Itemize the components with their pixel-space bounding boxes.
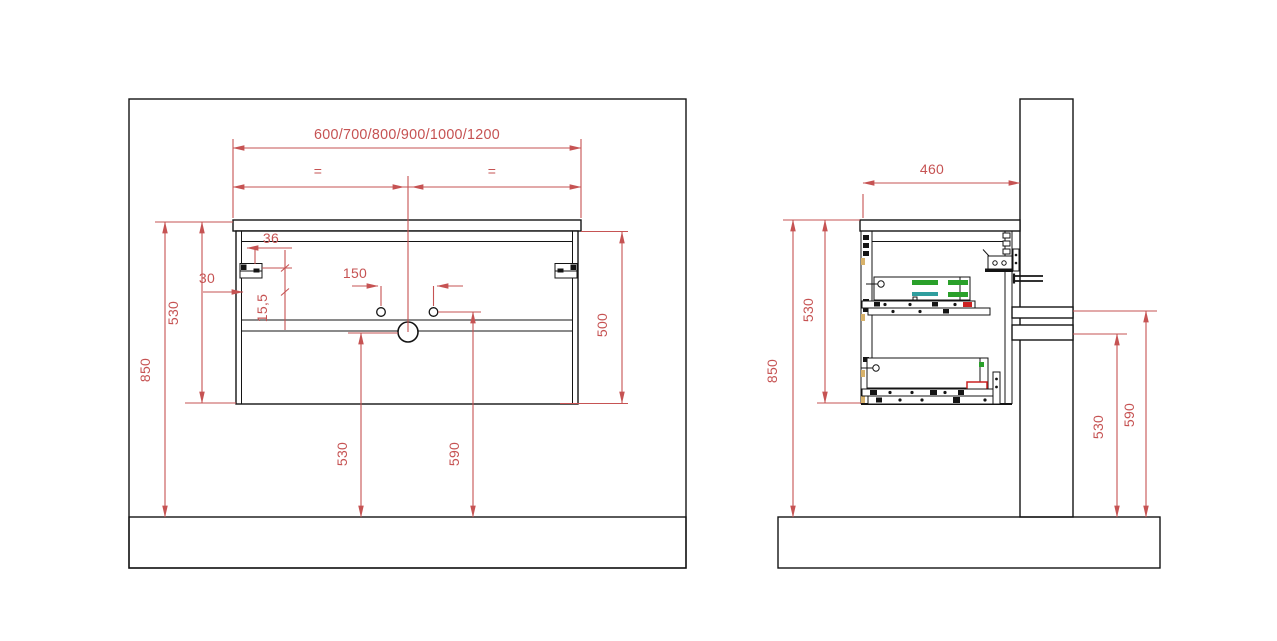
supply-pipe bbox=[1012, 307, 1073, 318]
faucet-hole-right bbox=[429, 308, 438, 317]
dim-label-drain-pipe-height: 530 bbox=[1090, 415, 1106, 439]
dim-label-height-side: 530 bbox=[800, 298, 816, 322]
carcass-front bbox=[236, 231, 578, 404]
drain-pipe bbox=[1012, 325, 1073, 340]
floor-section-side bbox=[778, 517, 1160, 568]
dim-label-height-with-top: 530 bbox=[165, 301, 181, 325]
dim-label-mounting-height: 850 bbox=[137, 358, 153, 382]
slide-lock-upper bbox=[963, 302, 972, 307]
adjustment-screw-upper bbox=[878, 281, 884, 287]
dim-label-bracket-inset: 36 bbox=[263, 230, 279, 246]
side-view: 460 850 530 590 530 bbox=[764, 99, 1160, 568]
lower-drawer bbox=[861, 358, 1000, 404]
dim-label-bracket-drop: 15,5 bbox=[254, 294, 270, 322]
dim-equal-halves: = = bbox=[233, 163, 581, 187]
dim-label-depth: 460 bbox=[920, 161, 944, 177]
technical-drawing-page: 600/700/800/900/1000/1200 = = 36 30 bbox=[0, 0, 1277, 641]
dim-label-supply-pipe-height: 590 bbox=[1121, 403, 1137, 427]
countertop-front bbox=[233, 220, 581, 231]
dim-label-mounting-height-side: 850 bbox=[764, 359, 780, 383]
dim-label-carcass-height: 500 bbox=[594, 313, 610, 337]
hanging-bracket-right bbox=[555, 264, 577, 279]
dim-label-drain-height: 530 bbox=[334, 442, 350, 466]
side-dimensions: 460 850 530 590 530 bbox=[764, 161, 1157, 517]
dim-label-faucet-spacing: 150 bbox=[343, 265, 367, 281]
lag-screw bbox=[1014, 274, 1043, 284]
dim-mounting-height: 850 bbox=[137, 222, 165, 517]
countertop-side bbox=[860, 220, 1020, 231]
dim-supply-pipe-height: 590 bbox=[1073, 311, 1157, 517]
dim-label-faucet-height: 590 bbox=[446, 442, 462, 466]
dim-label-side-clearance: 30 bbox=[199, 270, 215, 286]
upper-drawer bbox=[862, 277, 990, 315]
dim-label-equal-right: = bbox=[488, 163, 496, 179]
dim-height-side: 530 bbox=[800, 220, 861, 403]
dim-drain-pipe-height: 530 bbox=[1073, 334, 1127, 517]
dim-label-width-options: 600/700/800/900/1000/1200 bbox=[314, 126, 500, 143]
dim-width-options: 600/700/800/900/1000/1200 bbox=[233, 126, 581, 148]
slide-damper bbox=[912, 292, 938, 296]
vanity-installation-drawing: 600/700/800/900/1000/1200 = = 36 30 bbox=[0, 0, 1277, 641]
adjustment-screw-lower bbox=[873, 365, 879, 371]
front-view: 600/700/800/900/1000/1200 = = 36 30 bbox=[129, 99, 686, 568]
dim-height-with-top: 530 bbox=[155, 222, 236, 403]
floor-section-front bbox=[129, 517, 686, 568]
dim-mounting-height-side: 850 bbox=[764, 220, 860, 517]
soft-close-rail bbox=[912, 280, 938, 285]
dim-depth: 460 bbox=[863, 161, 1020, 218]
hanging-bracket-left bbox=[240, 264, 262, 279]
faucet-hole-left bbox=[377, 308, 386, 317]
dim-label-equal-left: = bbox=[314, 163, 322, 179]
